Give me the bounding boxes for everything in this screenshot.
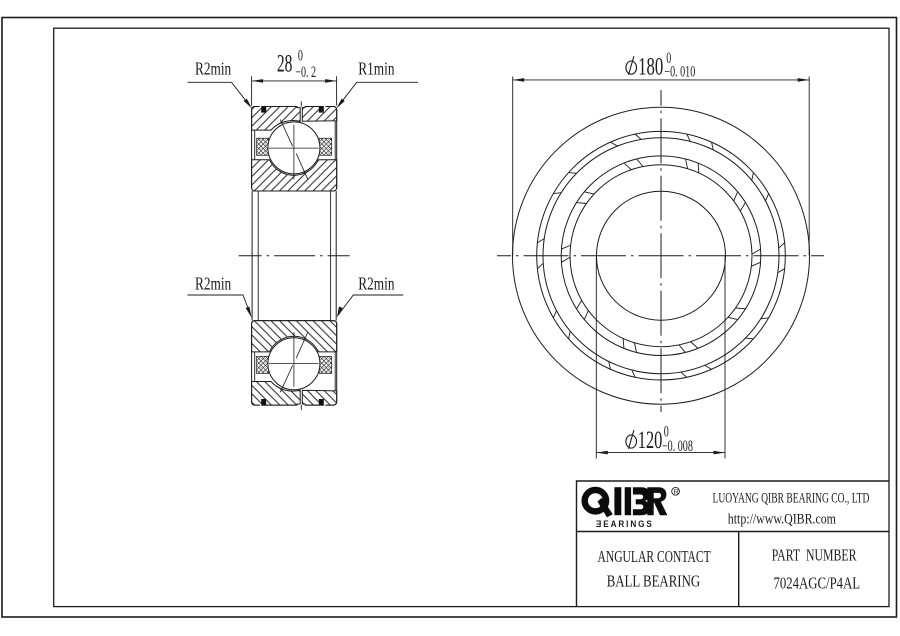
svg-text:R2min: R2min <box>358 275 394 294</box>
svg-text:−0. 010: −0. 010 <box>664 62 695 80</box>
svg-text:120: 120 <box>638 426 663 454</box>
svg-text:R1min: R1min <box>358 60 394 79</box>
svg-text:R: R <box>674 489 679 496</box>
svg-text:7024AGC/P4AL: 7024AGC/P4AL <box>774 575 861 593</box>
svg-text:0: 0 <box>298 46 303 64</box>
svg-text:LUOYANG QIBR BEARING CO., LTD: LUOYANG QIBR BEARING CO., LTD <box>713 489 870 506</box>
svg-text:28: 28 <box>277 50 292 78</box>
svg-text:−0. 2: −0. 2 <box>295 63 316 81</box>
svg-text:R2min: R2min <box>195 60 231 79</box>
svg-text:−0. 008: −0. 008 <box>662 437 693 455</box>
svg-text:ƎEARINGS: ƎEARINGS <box>596 519 654 529</box>
svg-text:BALL BEARING: BALL BEARING <box>607 573 701 591</box>
svg-text:http://www.QIBR.com: http://www.QIBR.com <box>728 510 837 526</box>
svg-text:PART NUMBER: PART NUMBER <box>772 546 857 565</box>
svg-text:R2min: R2min <box>195 275 231 294</box>
svg-text:180: 180 <box>638 52 663 80</box>
svg-text:ANGULAR CONTACT: ANGULAR CONTACT <box>598 548 711 567</box>
